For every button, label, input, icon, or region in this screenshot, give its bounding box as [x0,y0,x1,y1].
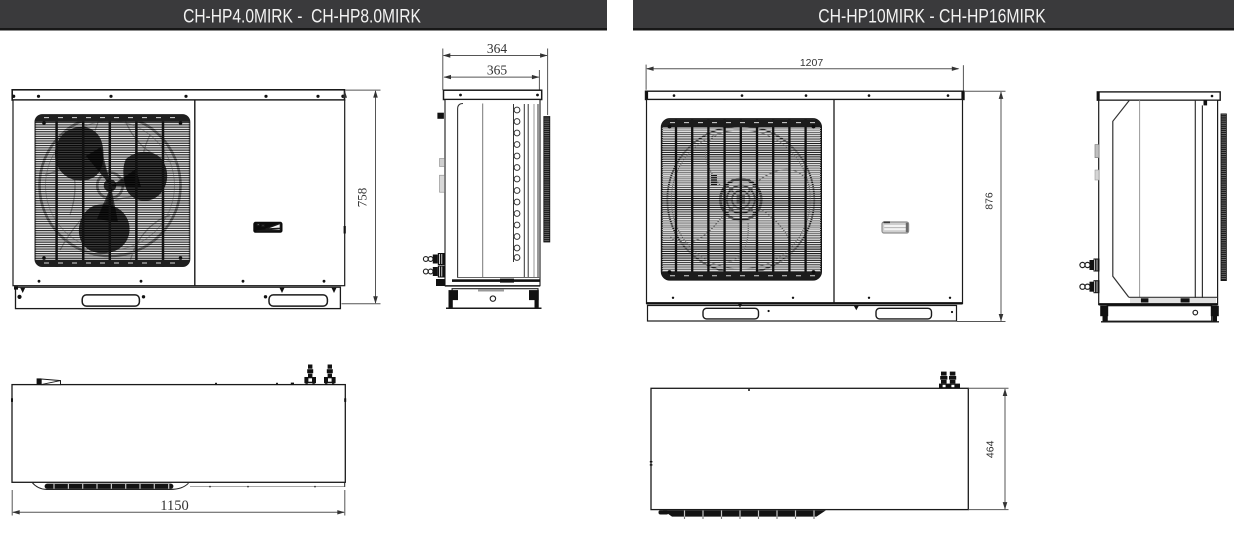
svg-text:1150: 1150 [160,498,188,514]
svg-text:876: 876 [984,192,996,210]
svg-text:CH-HP10MIRK - CH-HP16MIRK: CH-HP10MIRK - CH-HP16MIRK [818,5,1046,27]
svg-text:CH-HP4.0MIRK - CH-HP8.0MIRK: CH-HP4.0MIRK - CH-HP8.0MIRK [183,5,421,27]
svg-text:1207: 1207 [800,57,824,69]
svg-text:364: 364 [487,41,508,56]
svg-text:464: 464 [985,440,997,458]
svg-text:365: 365 [487,63,508,78]
svg-text:758: 758 [354,188,369,208]
